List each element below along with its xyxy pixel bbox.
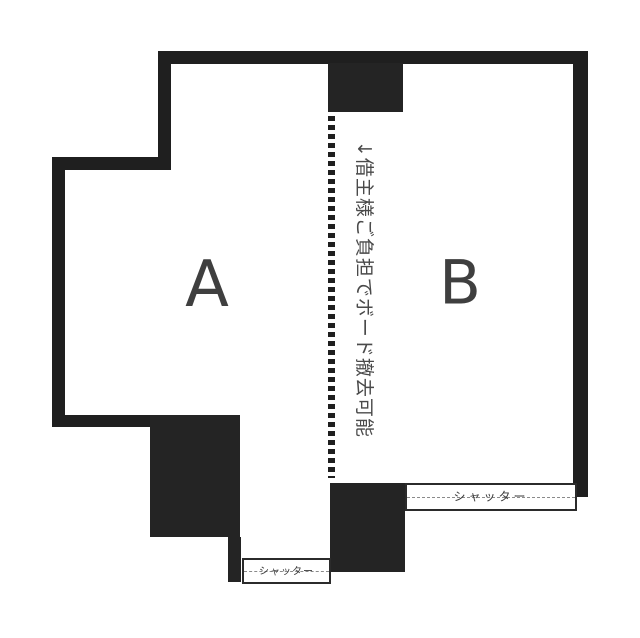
pillar-top-center	[328, 63, 403, 112]
shutter-right-label: シャッター	[407, 487, 575, 504]
shutter-right-box: シャッター	[405, 483, 577, 511]
wall-right	[573, 51, 588, 497]
wall-bottom-left	[52, 415, 152, 427]
shutter-bottom-label: シャッター	[244, 563, 329, 578]
wall-left	[52, 157, 65, 427]
shutter-bottom-box: シャッター	[242, 558, 331, 584]
floorplan: A B ↓借主様ご負担でボード撤去可能 シャッター シャッター	[0, 0, 640, 638]
pillar-bottom-center	[330, 483, 405, 572]
pillar-bottom-left-strip	[228, 537, 241, 582]
wall-upper-left	[158, 51, 171, 170]
pillar-bottom-left	[150, 415, 240, 537]
unit-b-label: B	[439, 253, 481, 314]
partition-dashed-line	[328, 116, 335, 478]
partition-note: ↓借主様ご負担でボード撤去可能	[354, 141, 374, 453]
unit-a-label: A	[185, 253, 229, 317]
wall-step-left	[52, 157, 171, 170]
